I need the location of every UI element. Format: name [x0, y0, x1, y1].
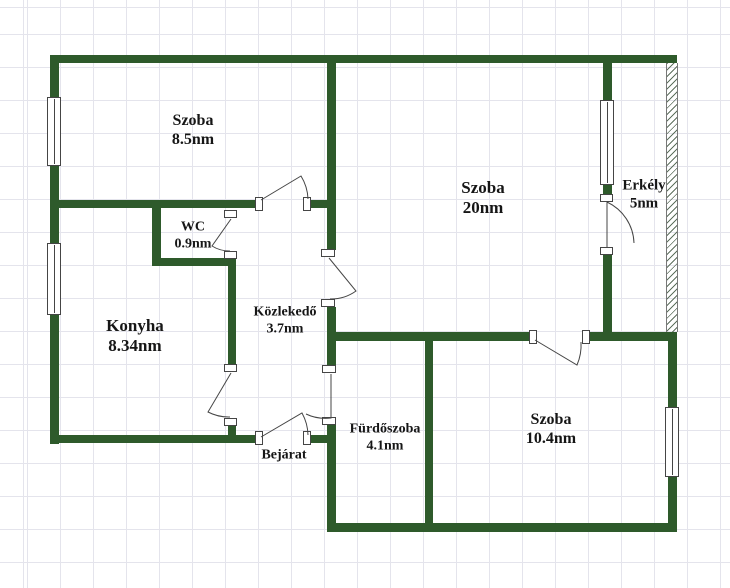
door-arc-kitchen [208, 373, 231, 417]
wall-mid-vertical-lower [327, 425, 336, 532]
wall-room20-bottom-right [590, 332, 677, 341]
entrance-text: Bejárat [261, 448, 306, 465]
door-jamb [600, 247, 613, 255]
door-jamb [224, 210, 237, 218]
wall-room85-bottom-left [50, 200, 255, 208]
room-area: 8.34nm [106, 336, 164, 356]
door-jamb [322, 417, 336, 425]
balcony-hatch-edge [666, 63, 678, 332]
door-arc-room20 [329, 258, 356, 299]
room-label-szoba-20: Szoba 20nm [461, 178, 504, 218]
door-jamb [255, 431, 263, 445]
wall-top-exterior [50, 55, 677, 63]
room-area: 20nm [461, 198, 504, 218]
door-swing-layer [0, 0, 730, 588]
door-arc-room104 [535, 340, 581, 365]
door-jamb [224, 364, 237, 372]
room-name: Fürdőszoba [350, 421, 421, 438]
door-jamb [582, 330, 590, 344]
door-jamb [529, 330, 537, 344]
room-area: 0.9nm [175, 236, 212, 253]
door-jamb [322, 365, 336, 373]
wall-bathroom-divider [425, 341, 433, 523]
wall-mid-vertical-upper [327, 55, 336, 250]
room-area: 5nm [622, 195, 665, 213]
door-arc-room85 [261, 176, 308, 200]
window-kitchen-left [47, 243, 61, 315]
room-label-szoba-10-4: Szoba 10.4nm [526, 411, 576, 449]
door-arc-wc [212, 219, 231, 251]
window-room20-balcony [600, 100, 614, 185]
window-room104-right [665, 407, 679, 477]
room-name: WC [175, 219, 212, 236]
door-jamb [224, 418, 237, 426]
wall-kitchen-divider-lower [228, 426, 236, 443]
wall-kitchen-divider-upper [228, 259, 236, 364]
door-jamb [224, 251, 237, 259]
door-jamb [321, 249, 335, 257]
entrance-label: Bejárat [261, 448, 306, 465]
room-name: Konyha [106, 316, 164, 336]
wall-room20-bottom-left [327, 332, 529, 341]
door-arc-entrance [261, 413, 308, 437]
room-area: 8.5nm [172, 131, 214, 150]
room-label-wc: WC 0.9nm [175, 219, 212, 252]
room-label-kozlekedo: Közlekedő 3.7nm [254, 304, 317, 337]
room-label-szoba-8-5: Szoba 8.5nm [172, 112, 214, 150]
window-room85-left [47, 97, 61, 166]
room-label-furdoszoba: Fürdőszoba 4.1nm [350, 421, 421, 454]
room-area: 3.7nm [254, 321, 317, 338]
room-label-erkely: Erkély 5nm [622, 177, 665, 212]
door-jamb [600, 194, 613, 202]
door-jamb [303, 431, 311, 445]
room-name: Közlekedő [254, 304, 317, 321]
wall-bottom-exterior [327, 523, 677, 532]
room-area: 10.4nm [526, 430, 576, 449]
wall-balcony-lower [603, 255, 612, 332]
room-name: Szoba [461, 178, 504, 198]
door-jamb [321, 299, 335, 307]
room-label-konyha: Konyha 8.34nm [106, 316, 164, 356]
floor-plan: Szoba 8.5nm Szoba 20nm Erkély 5nm WC 0.9… [0, 0, 730, 588]
wall-wc-bottom [152, 258, 236, 266]
room-name: Szoba [172, 112, 214, 131]
room-area: 4.1nm [350, 438, 421, 455]
door-arc-bathroom [306, 374, 331, 418]
door-jamb [303, 197, 311, 211]
room-name: Erkély [622, 177, 665, 195]
door-jamb [255, 197, 263, 211]
room-name: Szoba [526, 411, 576, 430]
